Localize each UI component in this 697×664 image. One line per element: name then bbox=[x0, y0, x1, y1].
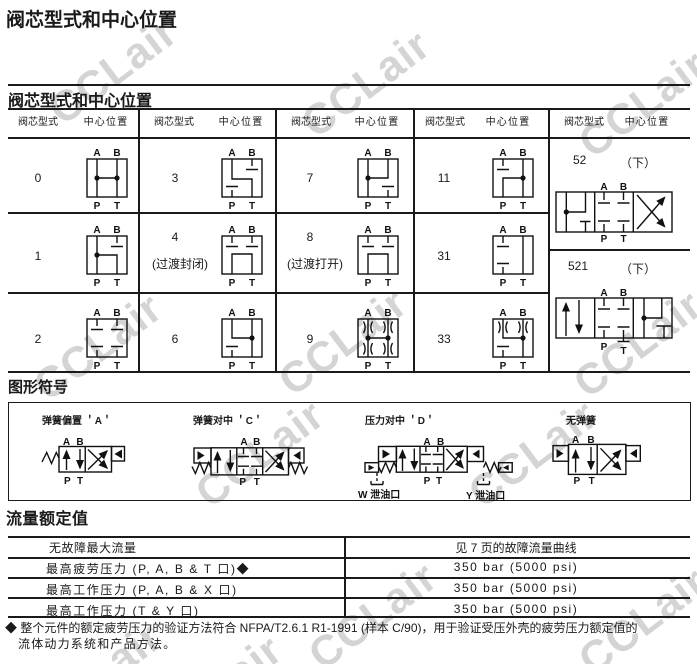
svg-text:B: B bbox=[248, 308, 255, 319]
svg-text:T: T bbox=[77, 476, 83, 487]
svg-text:B: B bbox=[113, 308, 120, 319]
svg-text:T: T bbox=[249, 361, 255, 372]
svg-text:Y 泄油口: Y 泄油口 bbox=[466, 489, 505, 502]
svg-text:T: T bbox=[114, 278, 120, 289]
svg-text:B: B bbox=[113, 148, 120, 159]
svg-text:T: T bbox=[114, 201, 120, 212]
svg-text:B: B bbox=[384, 308, 391, 319]
svg-text:P: P bbox=[424, 476, 431, 487]
svg-text:T: T bbox=[385, 278, 391, 289]
svg-text:P: P bbox=[239, 477, 246, 488]
svg-text:A: A bbox=[93, 308, 100, 319]
svg-text:P: P bbox=[229, 361, 236, 372]
svg-text:P: P bbox=[365, 361, 372, 372]
svg-text:A: A bbox=[240, 437, 247, 448]
svg-text:B: B bbox=[113, 225, 120, 236]
svg-text:T: T bbox=[589, 476, 595, 487]
svg-text:T: T bbox=[520, 361, 526, 372]
svg-text:B: B bbox=[248, 225, 255, 236]
svg-text:A: A bbox=[499, 225, 506, 236]
svg-text:T: T bbox=[385, 201, 391, 212]
svg-text:B: B bbox=[384, 225, 391, 236]
svg-text:P: P bbox=[229, 278, 236, 289]
svg-text:T: T bbox=[254, 477, 260, 488]
svg-text:P: P bbox=[601, 342, 608, 353]
svg-text:B: B bbox=[253, 437, 260, 448]
svg-text:T: T bbox=[620, 234, 626, 245]
svg-text:P: P bbox=[365, 201, 372, 212]
svg-text:P: P bbox=[229, 201, 236, 212]
svg-text:A: A bbox=[499, 308, 506, 319]
svg-text:P: P bbox=[94, 278, 101, 289]
svg-text:P: P bbox=[94, 361, 101, 372]
svg-text:P: P bbox=[500, 361, 507, 372]
svg-text:P: P bbox=[500, 278, 507, 289]
svg-text:P: P bbox=[601, 234, 608, 245]
svg-text:B: B bbox=[248, 148, 255, 159]
svg-text:T: T bbox=[620, 346, 626, 357]
svg-text:B: B bbox=[384, 148, 391, 159]
svg-text:T: T bbox=[114, 361, 120, 372]
svg-text:T: T bbox=[520, 278, 526, 289]
svg-text:A: A bbox=[93, 148, 100, 159]
svg-text:A: A bbox=[499, 148, 506, 159]
svg-text:P: P bbox=[64, 476, 71, 487]
svg-text:A: A bbox=[93, 225, 100, 236]
svg-text:A: A bbox=[228, 148, 235, 159]
svg-text:P: P bbox=[94, 201, 101, 212]
svg-text:T: T bbox=[249, 201, 255, 212]
svg-text:B: B bbox=[519, 308, 526, 319]
svg-text:A: A bbox=[364, 148, 371, 159]
svg-text:B: B bbox=[519, 148, 526, 159]
svg-text:B: B bbox=[519, 225, 526, 236]
svg-text:T: T bbox=[249, 278, 255, 289]
svg-text:A: A bbox=[364, 308, 371, 319]
svg-text:A: A bbox=[364, 225, 371, 236]
svg-text:P: P bbox=[573, 476, 580, 487]
svg-text:T: T bbox=[385, 361, 391, 372]
svg-text:A: A bbox=[228, 308, 235, 319]
svg-text:W 泄油口: W 泄油口 bbox=[358, 488, 400, 501]
svg-text:T: T bbox=[520, 201, 526, 212]
svg-text:A: A bbox=[228, 225, 235, 236]
svg-text:P: P bbox=[365, 278, 372, 289]
svg-text:P: P bbox=[500, 201, 507, 212]
svg-text:T: T bbox=[436, 476, 442, 487]
